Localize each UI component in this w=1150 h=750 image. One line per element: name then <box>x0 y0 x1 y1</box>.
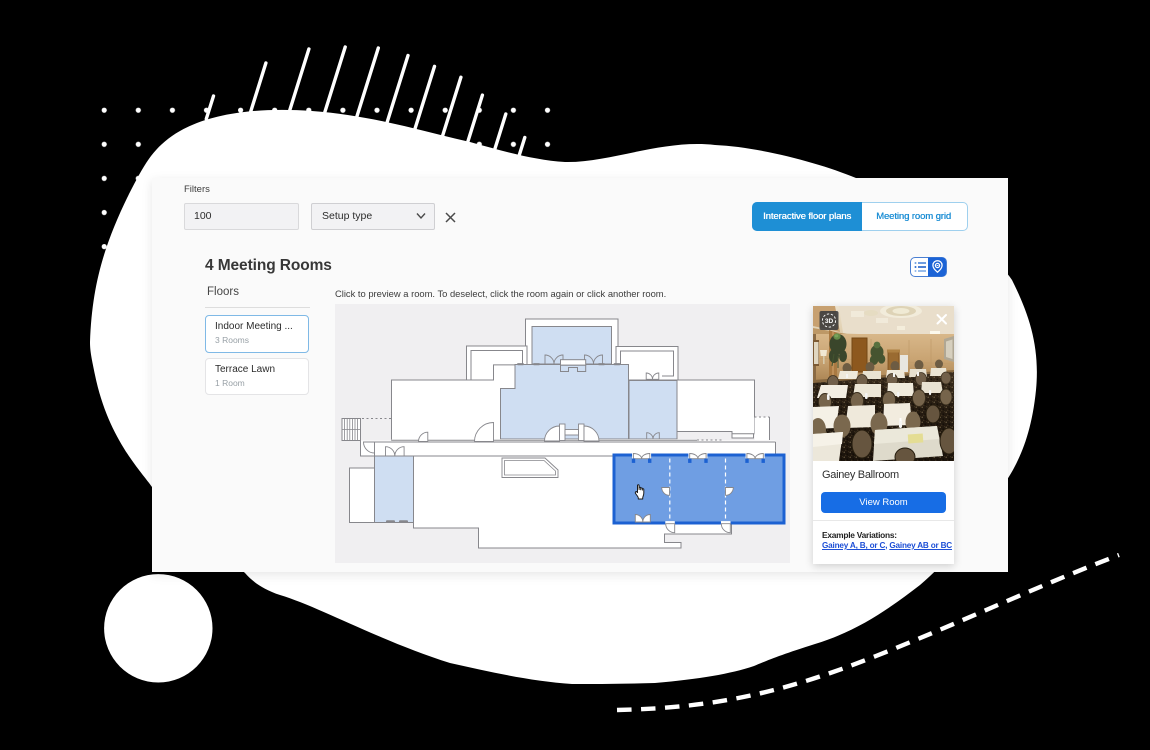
svg-text:3D: 3D <box>825 318 834 325</box>
